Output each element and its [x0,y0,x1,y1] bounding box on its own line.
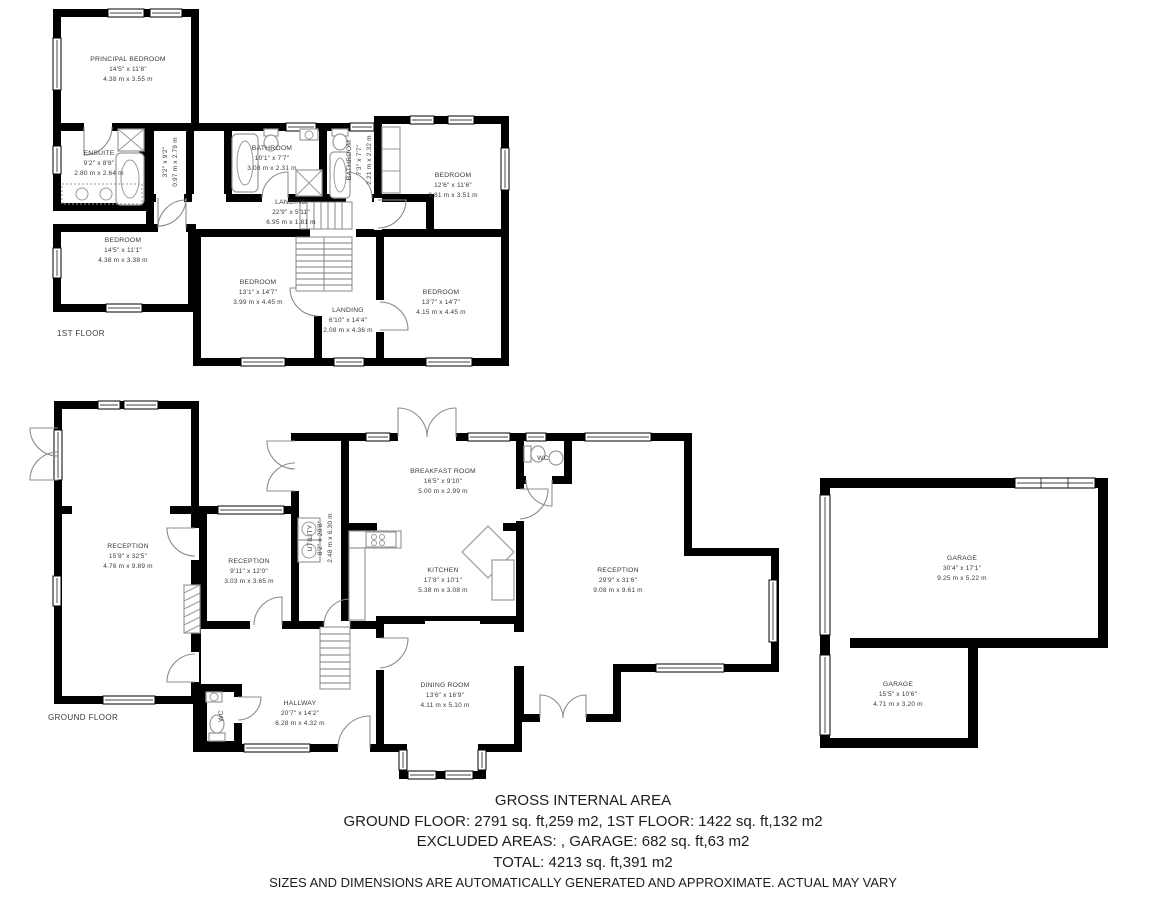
window [53,38,61,90]
room-label-landing-lower: LANDING 6'10" x 14'4" 2.08 m x 4.36 m [323,306,373,336]
door-opening [191,652,199,682]
window [98,401,120,409]
stair-opening [310,229,356,237]
window [1015,478,1095,488]
window [103,696,155,704]
room-label-garage-main: GARAGE 30'4" x 17'1" 9.25 m x 5.22 m [937,554,987,584]
room-label-reception-small: RECEPTION 9'11" x 12'0" 3.03 m x 3.65 m [224,557,274,587]
door-opening [516,489,524,521]
disclaimer-line: SIZES AND DIMENSIONS ARE AUTOMATICALLY G… [0,873,1166,892]
floor-areas-line: GROUND FLOOR: 2791 sq. ft,259 m2, 1ST FL… [0,812,1166,833]
room-label-wc-hall: WC [217,710,227,722]
window [478,750,486,770]
window [426,358,472,366]
window [241,358,285,366]
room-label-wc-breakfast: WC [537,454,549,464]
door-opening [526,476,552,484]
floorplan-canvas: PRINCIPAL BEDROOM 14'5" x 11'8" 4.38 m x… [0,0,1166,900]
window [124,401,158,409]
window [53,576,61,606]
open-plan-gap [512,632,524,666]
gross-internal-area-title: GROSS INTERNAL AREA [0,791,1166,812]
sink-icon [206,692,222,702]
window [448,116,474,124]
door-opening [376,638,384,670]
room-label-utility: UTILITY 8'2" x 20'8" 2.48 m x 6.30 m [306,513,336,563]
excluded-areas-line: EXCLUDED AREAS: , GARAGE: 682 sq. ft,63 … [0,832,1166,853]
door-opening [191,528,199,560]
window [334,358,364,366]
total-area-line: TOTAL: 4213 sq. ft,391 m2 [0,853,1166,874]
sink-icon [549,451,563,465]
room-label-bedroom-br: BEDROOM 13'7" x 14'7" 4.15 m x 4.45 m [416,288,466,318]
stairs-icon [320,627,350,689]
room-label-bathroom-2: BATHROOM 7'3" x 7'7" 2.21 m x 2.32 m [345,135,375,185]
room-label-bathroom-1: BATHROOM 10'1" x 7'7" 3.08 m x 2.31 m [247,144,297,174]
room-label-landing-upper: LANDING 22'9" x 5'11" 6.95 m x 1.81 m [266,198,316,228]
door-opening [192,194,226,202]
window [408,771,436,779]
window [820,495,830,635]
door-opening [374,198,382,230]
room-label-hallway: HALLWAY 20'7" x 14'2" 6.28 m x 4.32 m [275,699,325,729]
room-label-kitchen: KITCHEN 17'8" x 10'1" 5.38 m x 3.08 m [418,566,468,596]
room-label-breakfast-room: BREAKFAST ROOM 16'5" x 9'10" 5.00 m x 2.… [410,467,476,497]
french-door-arc [427,408,456,437]
window [585,433,651,441]
room-label-reception-main: RECEPTION 29'9" x 31'6" 9.08 m x 9.61 m [593,566,643,596]
window [108,9,144,17]
window [501,148,509,190]
door-opening [830,638,850,648]
window [106,304,142,312]
sink-icon [300,129,318,140]
window [445,771,473,779]
wardrobe-icon [382,127,400,193]
window [769,580,777,642]
window [53,248,61,278]
room-label-corridor: 3'2" x 9'2" 0.97 m x 2.79 m [161,137,181,187]
french-door-arc [398,408,427,437]
floorplan-drawing [0,0,1166,900]
room-label-garage-small: GARAGE 15'5" x 10'6" 4.71 m x 3.20 m [873,680,923,710]
window [350,123,374,131]
first-floor-tag: 1ST FLOOR [57,329,105,338]
window [150,9,182,17]
window [399,750,407,770]
garage-plan [820,478,1103,743]
room-label-bedroom-bm: BEDROOM 13'1" x 14'7" 3.99 m x 4.45 m [233,278,283,308]
fireplace-icon [184,585,200,633]
ground-floor-plan [30,401,777,779]
door-opening [84,123,112,131]
window [366,433,390,441]
closet-icon [296,170,322,196]
room-label-ensuite: ENSUITE 9'2" x 8'8" 2.80 m x 2.64 m [74,149,124,179]
area-summary: GROSS INTERNAL AREA GROUND FLOOR: 2791 s… [0,791,1166,892]
ground-floor-tag: GROUND FLOOR [48,713,118,722]
room-label-reception-left: RECEPTION 15'8" x 32'5" 4.76 m x 9.89 m [103,542,153,572]
door-opening [234,697,242,723]
bay-opening [407,743,478,753]
window [54,430,62,480]
open-plan-gap [425,621,480,629]
closet-icon [118,129,144,151]
room-label-bedroom-tr: BEDROOM 12'6" x 11'6" 3.81 m x 3.51 m [428,171,478,201]
window [820,655,830,735]
window [656,664,724,672]
window [244,744,310,752]
window [53,146,61,174]
window [526,433,546,441]
window [410,116,434,124]
french-door-arc [267,463,295,491]
door-opening [291,441,299,491]
hob-icon [366,532,396,547]
door-opening [250,621,282,629]
front-door-opening [338,744,370,752]
window [218,506,284,514]
door-opening [376,300,384,332]
room-label-principal-bedroom: PRINCIPAL BEDROOM 14'5" x 11'8" 4.38 m x… [90,55,166,85]
window [468,433,510,441]
room-label-bedroom-bl: BEDROOM 14'5" x 11'1" 4.38 m x 3.38 m [98,236,148,266]
french-door-arc [267,441,295,469]
room-label-dining-room: DINING ROOM 13'6" x 16'9" 4.11 m x 5.10 … [420,681,469,711]
